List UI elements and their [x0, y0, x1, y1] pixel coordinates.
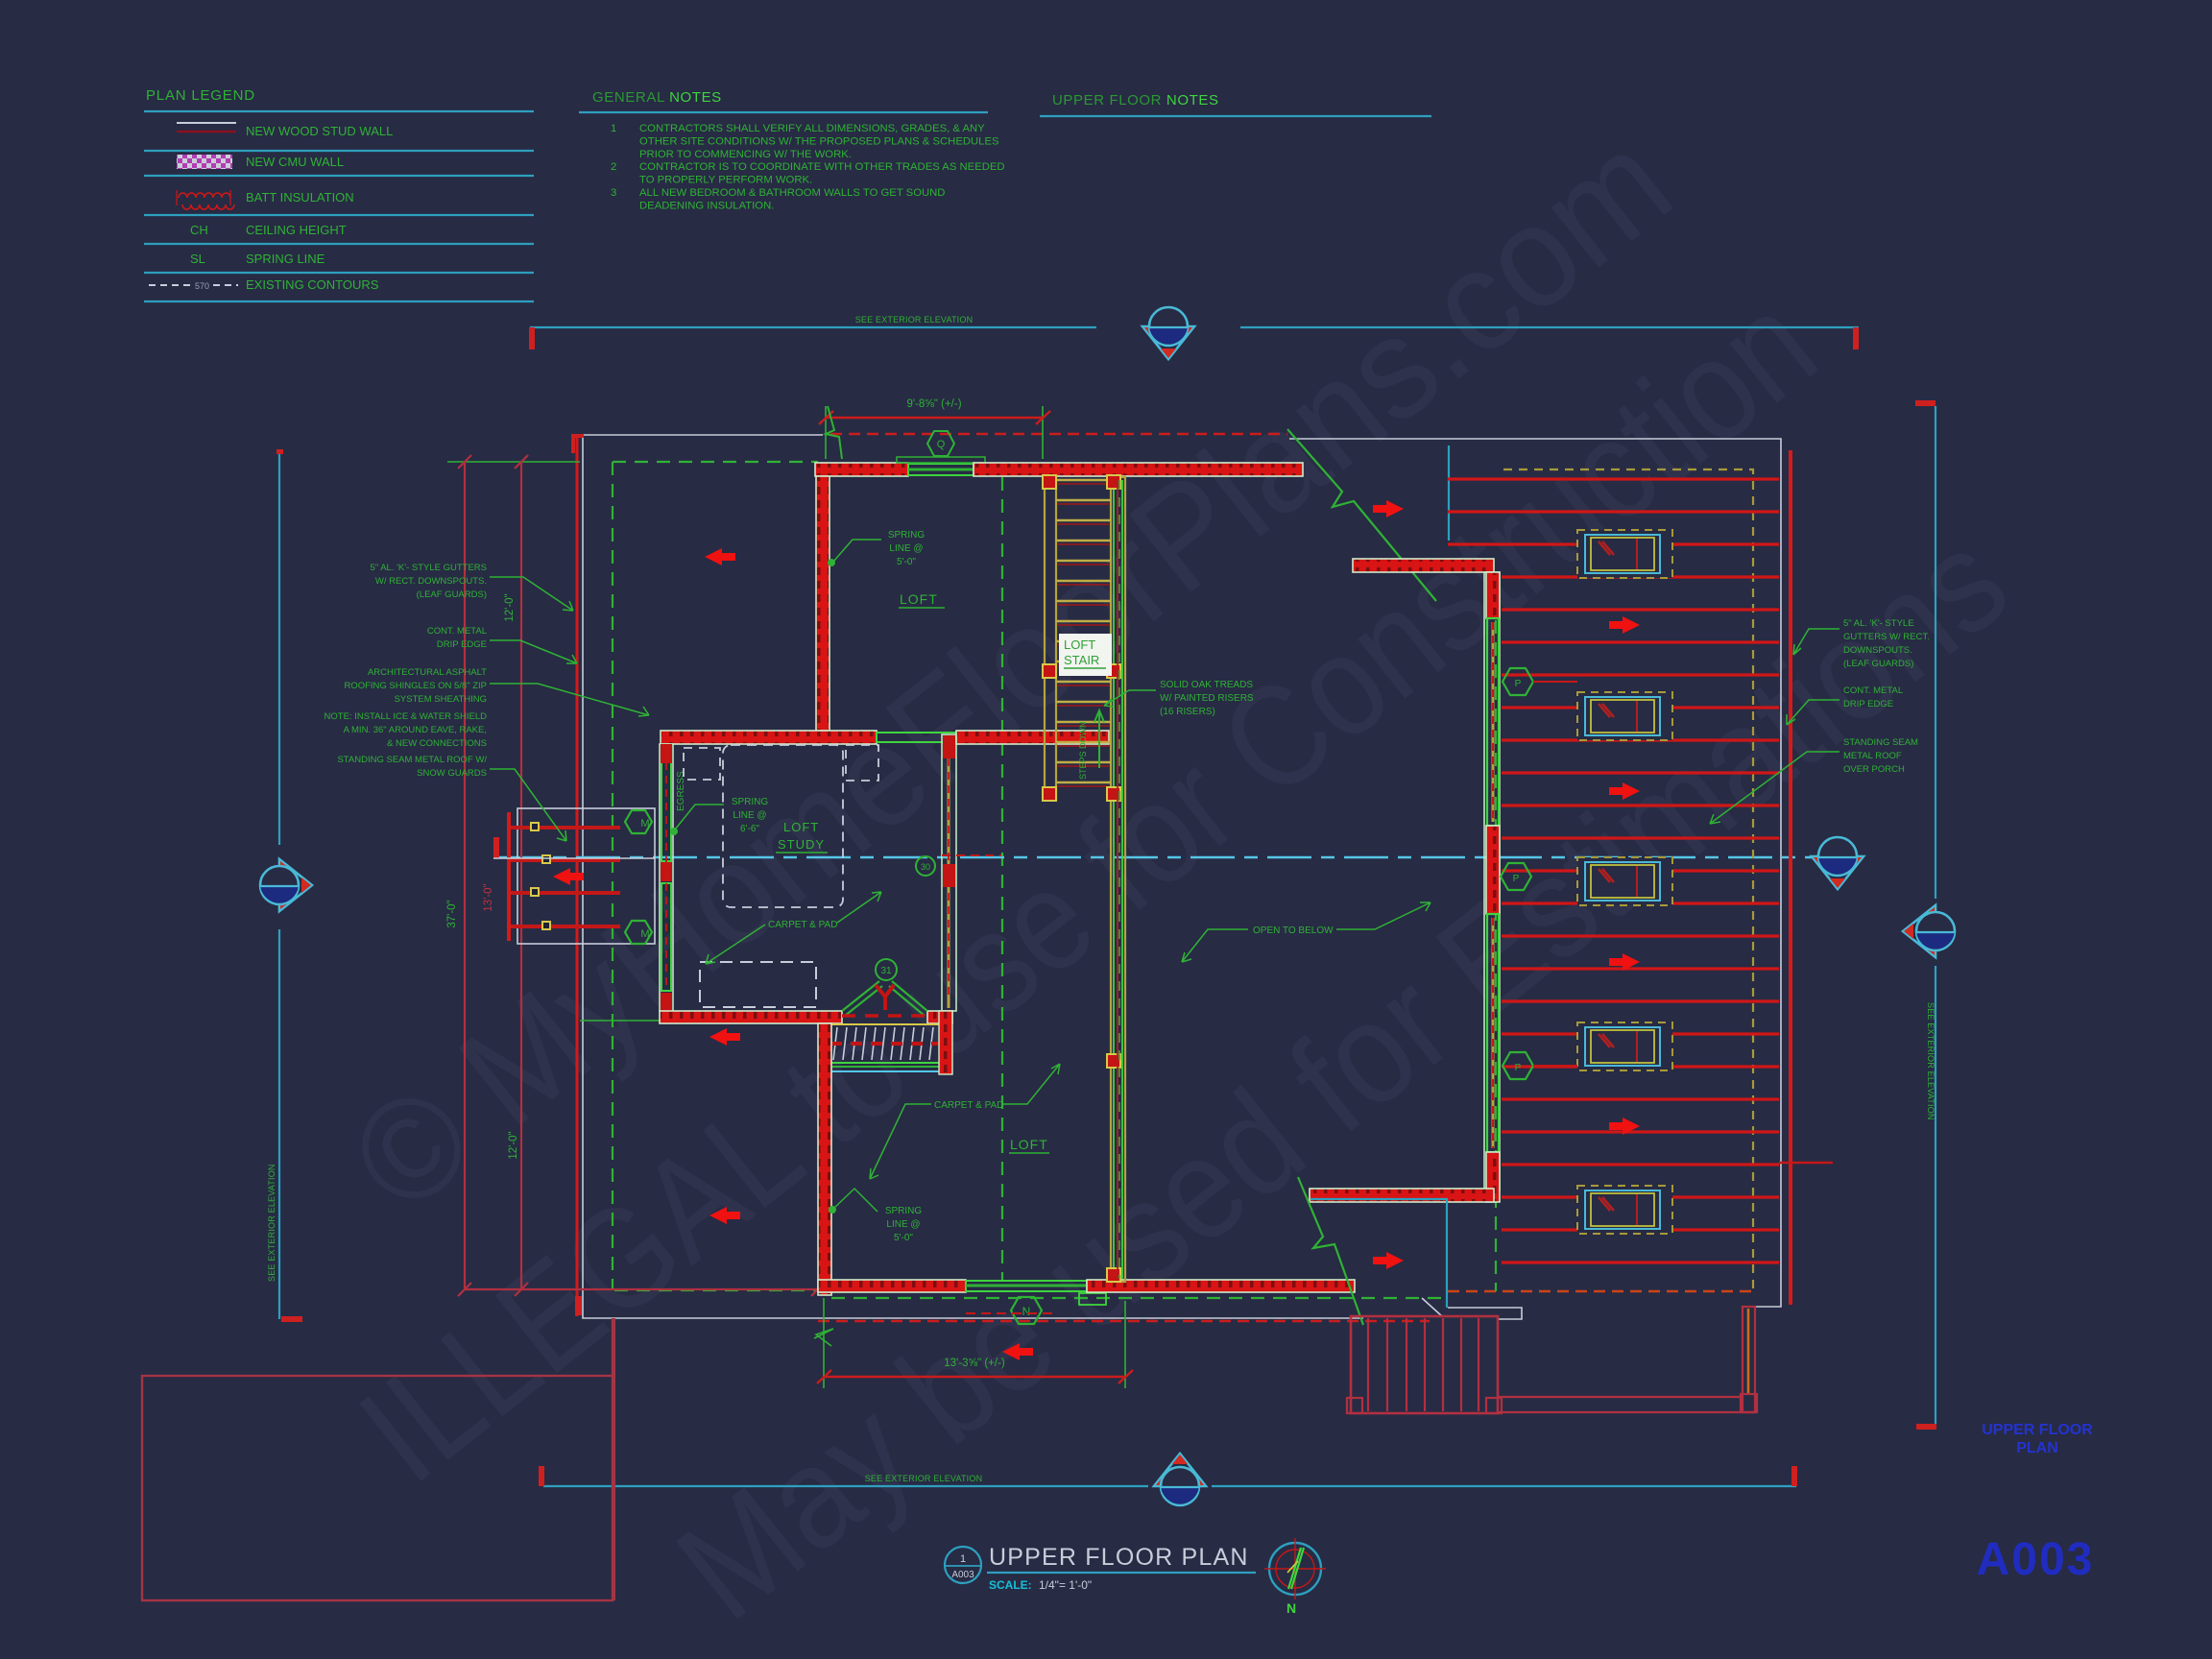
- svg-text:CH: CH: [190, 223, 208, 237]
- svg-text:SPRING: SPRING: [732, 797, 769, 807]
- svg-text:(16 RISERS): (16 RISERS): [1160, 707, 1215, 717]
- svg-text:30: 30: [921, 862, 930, 872]
- svg-text:P: P: [1513, 874, 1520, 884]
- svg-text:OTHER SITE CONDITIONS W/ THE P: OTHER SITE CONDITIONS W/ THE PROPOSED PL…: [639, 135, 999, 147]
- svg-text:LOFT: LOFT: [1010, 1137, 1048, 1152]
- svg-text:SEE EXTERIOR ELEVATION: SEE EXTERIOR ELEVATION: [865, 1474, 983, 1483]
- svg-text:UPPER FLOOR PLAN: UPPER FLOOR PLAN: [989, 1544, 1249, 1571]
- svg-text:13'-3⅝" (+/-): 13'-3⅝" (+/-): [944, 1358, 1005, 1369]
- svg-text:SOLID OAK TREADS: SOLID OAK TREADS: [1160, 680, 1253, 690]
- svg-text:DEADENING INSULATION.: DEADENING INSULATION.: [639, 200, 774, 211]
- svg-text:NOTE: INSTALL ICE & WATER SHIE: NOTE: INSTALL ICE & WATER SHIELD: [325, 711, 488, 722]
- svg-text:BATT INSULATION: BATT INSULATION: [246, 190, 354, 204]
- svg-text:PLAN: PLAN: [2016, 1440, 2058, 1456]
- svg-text:13'-0": 13'-0": [483, 883, 494, 911]
- svg-text:9'-8⅝" (+/-): 9'-8⅝" (+/-): [906, 398, 961, 410]
- svg-text:SCALE:: SCALE:: [989, 1578, 1032, 1592]
- svg-text:N: N: [1022, 1305, 1031, 1318]
- svg-text:(LEAF GUARDS): (LEAF GUARDS): [417, 589, 487, 600]
- svg-text:LINE @: LINE @: [886, 1219, 920, 1230]
- svg-text:LOFT: LOFT: [783, 820, 819, 834]
- svg-text:DOWNSPOUTS.: DOWNSPOUTS.: [1843, 645, 1912, 656]
- svg-text:3: 3: [611, 187, 616, 199]
- svg-text:CEILING HEIGHT: CEILING HEIGHT: [246, 223, 347, 237]
- svg-text:SYSTEM SHEATHING: SYSTEM SHEATHING: [395, 694, 487, 705]
- svg-text:SEE EXTERIOR ELEVATION: SEE EXTERIOR ELEVATION: [1926, 1002, 1935, 1120]
- svg-text:PLAN LEGEND: PLAN LEGEND: [146, 87, 255, 104]
- svg-text:CONTRACTORS SHALL VERIFY ALL D: CONTRACTORS SHALL VERIFY ALL DIMENSIONS,…: [639, 123, 985, 134]
- svg-text:N: N: [1286, 1600, 1296, 1616]
- svg-text:CARPET & PAD: CARPET & PAD: [768, 920, 837, 930]
- svg-text:LOFT: LOFT: [900, 591, 938, 607]
- svg-text:LINE @: LINE @: [733, 810, 766, 821]
- svg-text:SEE EXTERIOR ELEVATION: SEE EXTERIOR ELEVATION: [855, 315, 974, 325]
- svg-text:31: 31: [880, 966, 892, 976]
- svg-text:A003: A003: [951, 1570, 974, 1580]
- svg-text:5" AL. 'K'- STYLE GUTTERS: 5" AL. 'K'- STYLE GUTTERS: [370, 563, 487, 573]
- svg-text:37'-0": 37'-0": [446, 900, 458, 927]
- svg-text:CONT. METAL: CONT. METAL: [427, 626, 487, 637]
- svg-text:5'-0": 5'-0": [894, 1233, 913, 1243]
- svg-text:SPRING LINE: SPRING LINE: [246, 252, 325, 266]
- svg-text:12'-0": 12'-0": [504, 593, 516, 621]
- svg-text:DRIP EDGE: DRIP EDGE: [437, 639, 487, 650]
- svg-text:6'-6": 6'-6": [740, 824, 759, 834]
- svg-text:UPPER FLOOR NOTES: UPPER FLOOR NOTES: [1052, 92, 1219, 108]
- svg-text:M: M: [640, 928, 649, 940]
- svg-text:Q: Q: [937, 439, 946, 450]
- svg-text:STEPS DOWN: STEPS DOWN: [1078, 721, 1088, 780]
- svg-text:STAIR: STAIR: [1064, 653, 1099, 667]
- svg-text:(LEAF GUARDS): (LEAF GUARDS): [1843, 659, 1913, 669]
- svg-text:EGRESS: EGRESS: [676, 771, 686, 811]
- svg-text:GENERAL NOTES: GENERAL NOTES: [592, 89, 722, 106]
- svg-text:EXISTING CONTOURS: EXISTING CONTOURS: [246, 277, 379, 292]
- svg-text:SPRING: SPRING: [885, 1206, 923, 1216]
- svg-text:STANDING SEAM METAL ROOF W/: STANDING SEAM METAL ROOF W/: [337, 755, 487, 765]
- svg-text:ARCHITECTURAL ASPHALT: ARCHITECTURAL ASPHALT: [368, 667, 487, 678]
- svg-text:P: P: [1515, 679, 1522, 689]
- svg-text:OVER PORCH: OVER PORCH: [1843, 764, 1905, 775]
- svg-text:NEW CMU WALL: NEW CMU WALL: [246, 155, 344, 169]
- svg-text:CONTRACTOR IS TO COORDINATE WI: CONTRACTOR IS TO COORDINATE WITH OTHER T…: [639, 161, 1005, 173]
- svg-text:12'-0": 12'-0": [508, 1131, 519, 1159]
- svg-text:1/4"= 1'-0": 1/4"= 1'-0": [1039, 1578, 1092, 1592]
- svg-text:2: 2: [611, 161, 616, 173]
- svg-text:A MIN. 36" AROUND EAVE, RAKE,: A MIN. 36" AROUND EAVE, RAKE,: [344, 725, 487, 735]
- svg-text:SEE EXTERIOR ELEVATION: SEE EXTERIOR ELEVATION: [267, 1164, 276, 1282]
- svg-text:SL: SL: [190, 252, 205, 266]
- svg-text:NEW WOOD STUD WALL: NEW WOOD STUD WALL: [246, 124, 393, 138]
- svg-text:W/ RECT. DOWNSPOUTS.: W/ RECT. DOWNSPOUTS.: [375, 576, 487, 587]
- svg-text:STANDING SEAM: STANDING SEAM: [1843, 737, 1918, 748]
- svg-text:CONT. METAL: CONT. METAL: [1843, 685, 1903, 696]
- svg-text:A003: A003: [1977, 1534, 2095, 1585]
- svg-text:1: 1: [960, 1553, 966, 1565]
- svg-text:1: 1: [611, 123, 616, 134]
- svg-text:5'-0": 5'-0": [897, 557, 916, 567]
- svg-text:METAL ROOF: METAL ROOF: [1843, 751, 1902, 761]
- svg-text:PRIOR TO COMMENCING W/ THE WOR: PRIOR TO COMMENCING W/ THE WORK.: [639, 149, 852, 160]
- svg-text:& NEW CONNECTIONS: & NEW CONNECTIONS: [387, 738, 487, 749]
- svg-text:UPPER FLOOR: UPPER FLOOR: [1982, 1422, 2093, 1438]
- svg-text:570: 570: [195, 281, 209, 291]
- svg-text:5" AL. 'K'- STYLE: 5" AL. 'K'- STYLE: [1843, 618, 1914, 629]
- svg-text:ROOFING SHINGLES ON 5/8" ZIP: ROOFING SHINGLES ON 5/8" ZIP: [344, 681, 487, 691]
- svg-text:TO PROPERLY PERFORM WORK.: TO PROPERLY PERFORM WORK.: [639, 175, 812, 186]
- svg-text:SNOW GUARDS: SNOW GUARDS: [417, 768, 487, 779]
- svg-text:M: M: [640, 818, 649, 829]
- svg-text:GUTTERS W/ RECT.: GUTTERS W/ RECT.: [1843, 632, 1930, 642]
- svg-text:SPRING: SPRING: [888, 530, 926, 541]
- svg-text:STUDY: STUDY: [778, 837, 825, 852]
- svg-text:CARPET & PAD: CARPET & PAD: [934, 1100, 1003, 1111]
- svg-text:W/ PAINTED RISERS: W/ PAINTED RISERS: [1160, 693, 1254, 704]
- svg-text:P: P: [1515, 1063, 1522, 1073]
- svg-text:LINE @: LINE @: [889, 543, 923, 554]
- svg-text:OPEN TO BELOW: OPEN TO BELOW: [1253, 926, 1334, 936]
- svg-text:ALL NEW BEDROOM & BATHROOM WAL: ALL NEW BEDROOM & BATHROOM WALLS TO GET …: [639, 187, 945, 199]
- svg-text:DRIP EDGE: DRIP EDGE: [1843, 699, 1893, 709]
- svg-text:LOFT: LOFT: [1064, 637, 1095, 652]
